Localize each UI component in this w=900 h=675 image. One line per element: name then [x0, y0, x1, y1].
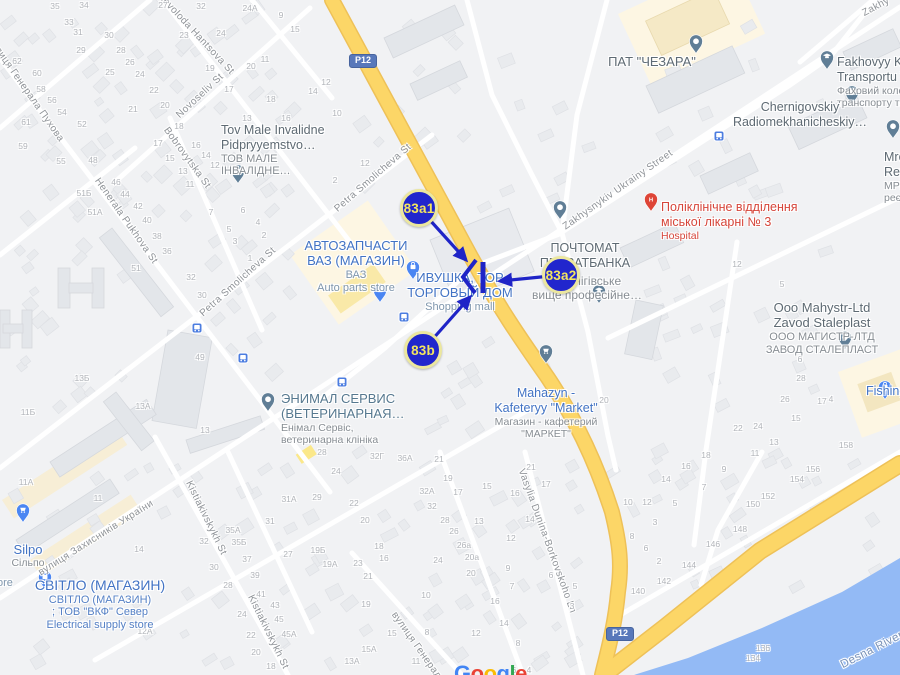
map-marker-83a2[interactable]: 83a2 [542, 256, 580, 294]
map-marker-83a1[interactable]: 83a1 [400, 189, 438, 227]
map-marker-83b[interactable]: 83b [404, 331, 442, 369]
map-viewport[interactable]: H Vsevoloda Hantsova StNovoseliv StBobro… [0, 0, 900, 675]
waypoint-markers-layer: 83a183a283b [0, 0, 900, 675]
